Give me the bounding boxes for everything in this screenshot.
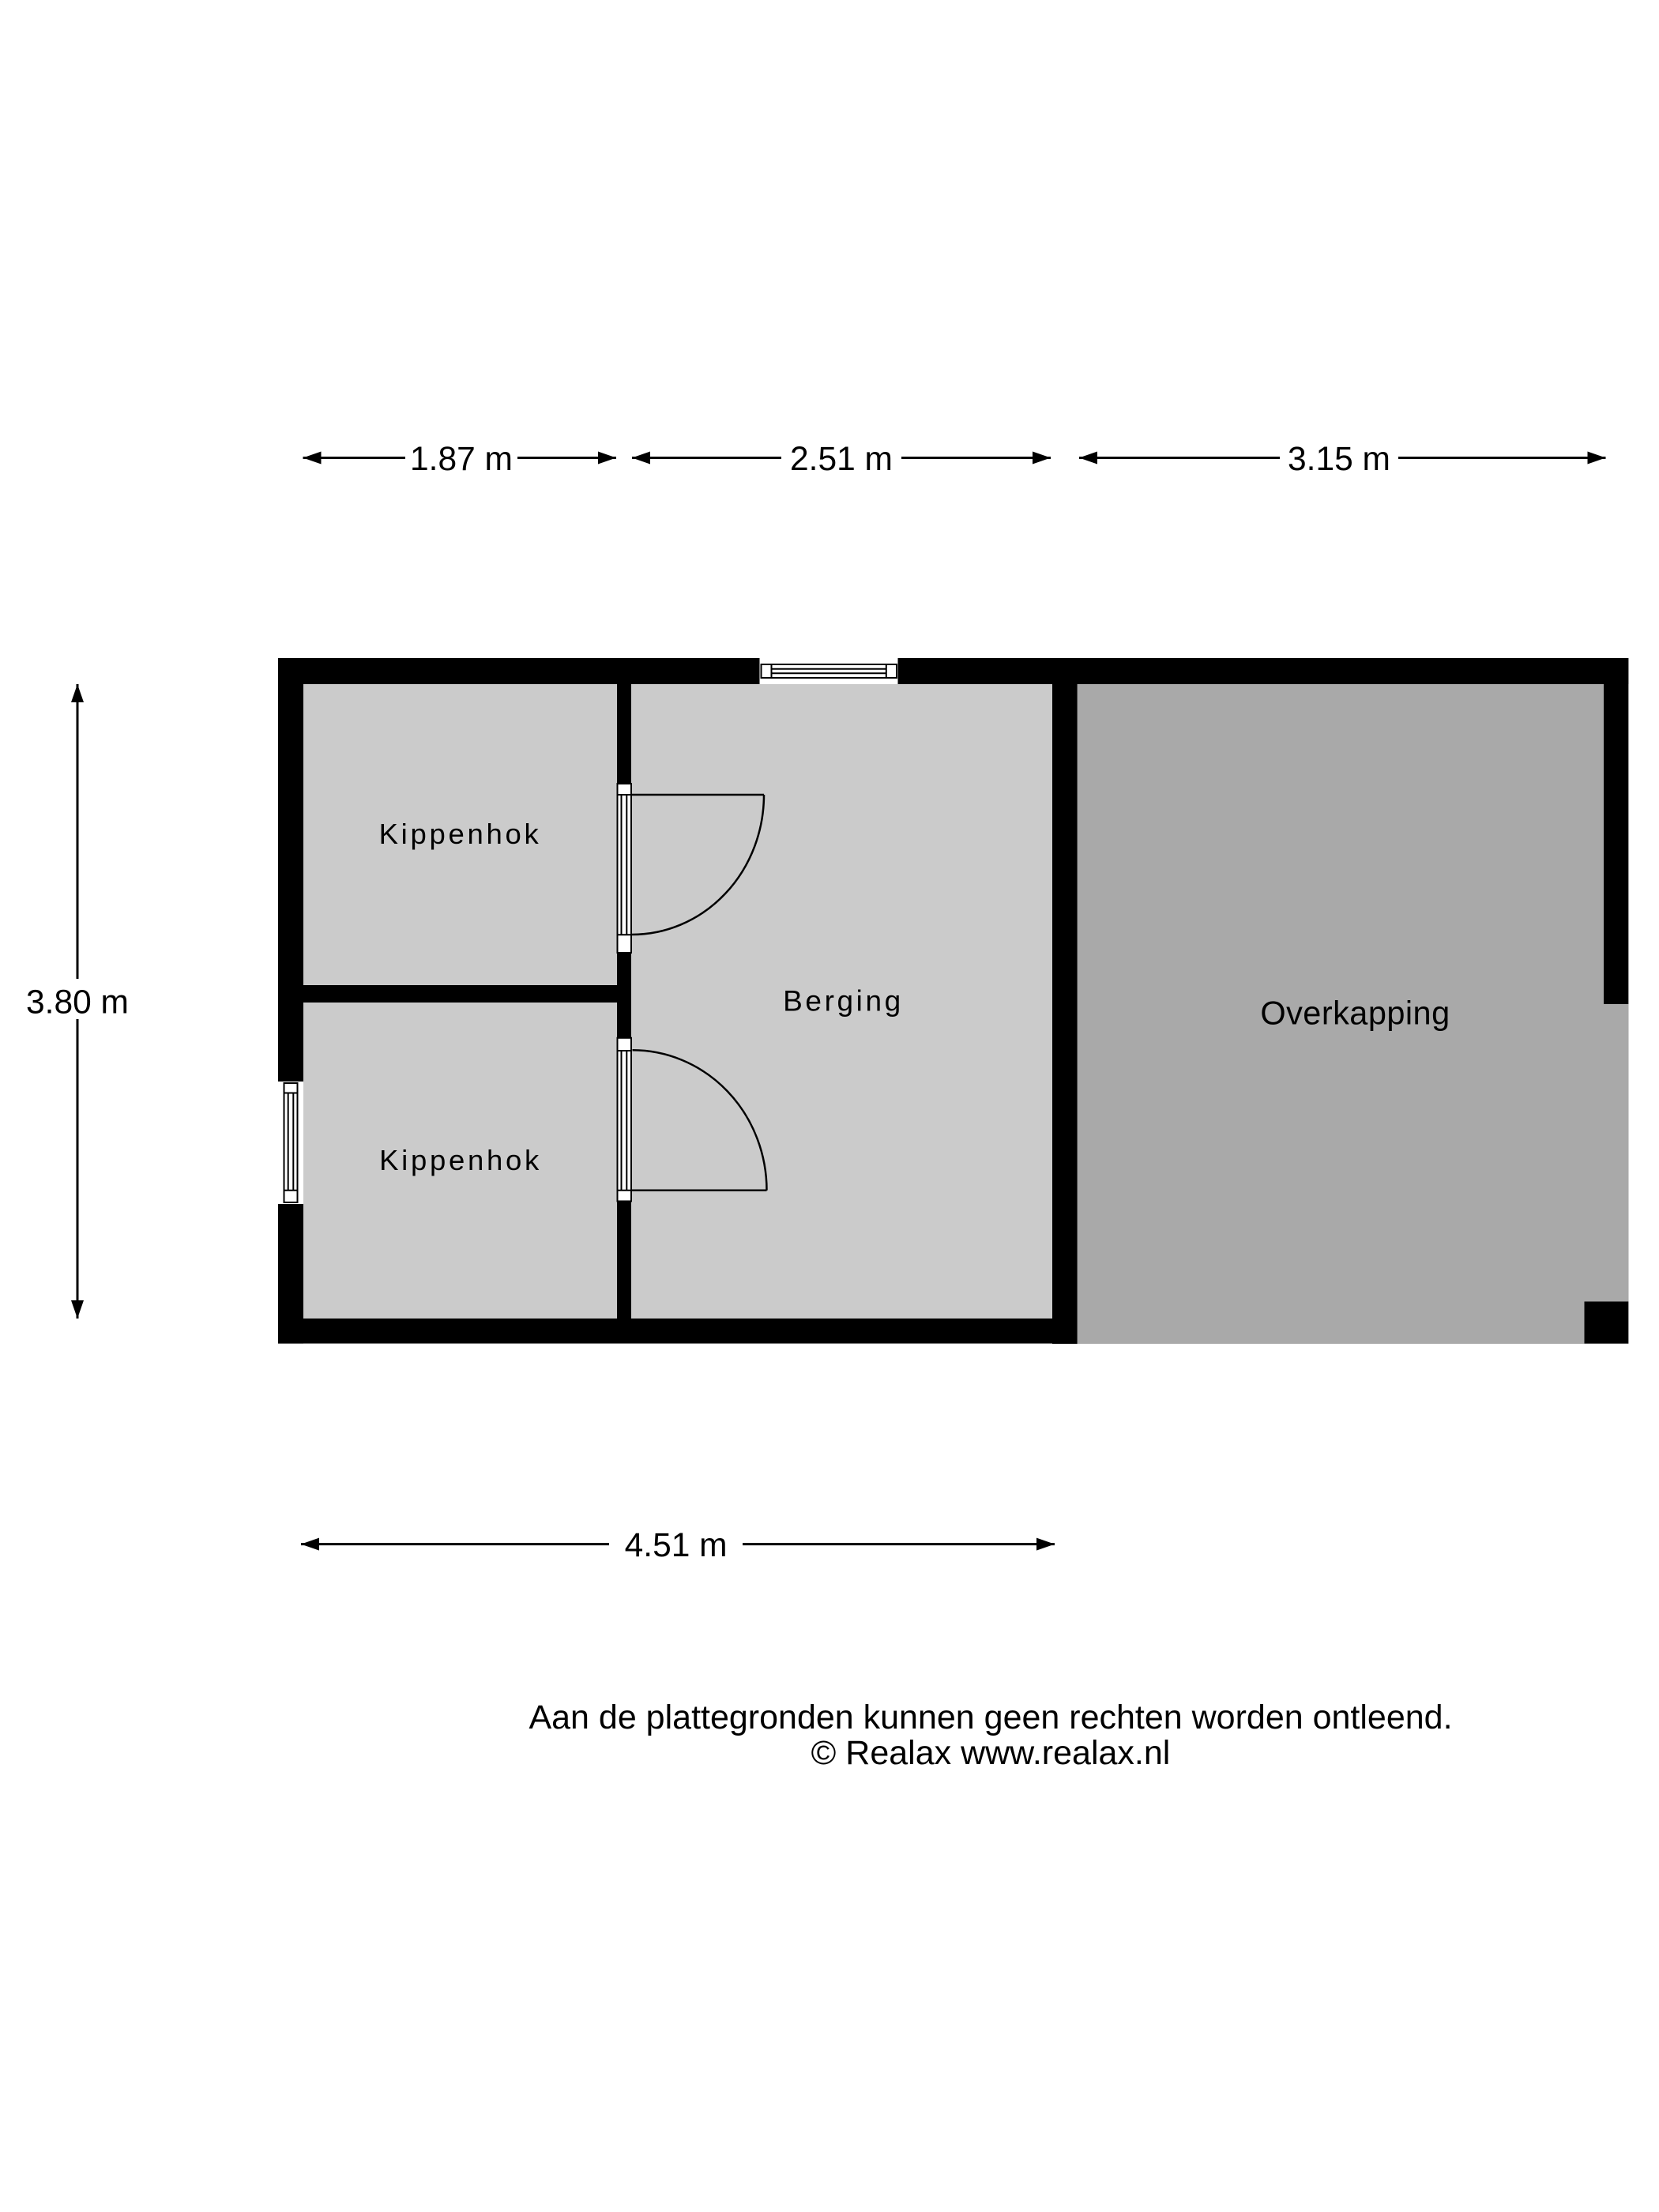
svg-text:Berging: Berging [783, 985, 904, 1018]
svg-text:Overkapping: Overkapping [1260, 995, 1450, 1032]
svg-text:3.15 m: 3.15 m [1288, 441, 1390, 478]
svg-text:3.80 m: 3.80 m [26, 984, 129, 1021]
svg-text:© Realax www.realax.nl: © Realax www.realax.nl [811, 1734, 1171, 1772]
svg-text:1.87 m: 1.87 m [410, 441, 513, 478]
svg-text:4.51 m: 4.51 m [625, 1527, 728, 1564]
svg-text:Kippenhok: Kippenhok [379, 1144, 542, 1176]
svg-text:2.51 m: 2.51 m [790, 441, 893, 478]
svg-text:Kippenhok: Kippenhok [379, 818, 542, 850]
svg-text:Aan de plattegronden kunnen ge: Aan de plattegronden kunnen geen rechten… [529, 1698, 1452, 1736]
